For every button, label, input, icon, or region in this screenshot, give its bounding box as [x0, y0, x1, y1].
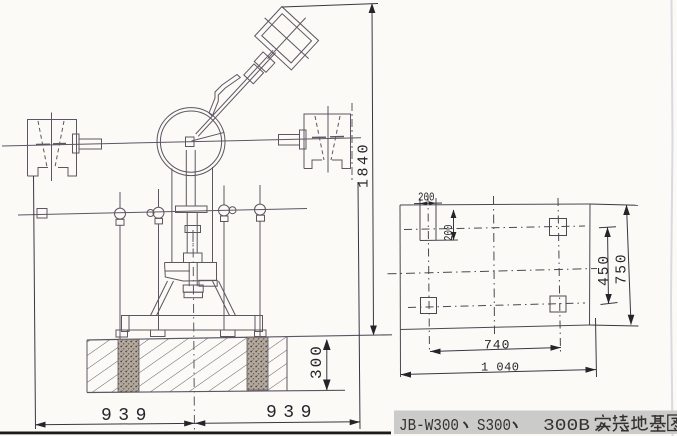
svg-text:200: 200 — [418, 191, 435, 205]
svg-text:1 040: 1 040 — [481, 361, 520, 375]
svg-text:740: 740 — [484, 338, 510, 353]
svg-text:300B: 300B — [543, 417, 590, 436]
svg-text:300: 300 — [308, 344, 326, 379]
svg-text:JB-W300: JB-W300 — [399, 417, 459, 436]
svg-text:1840: 1840 — [356, 142, 373, 188]
svg-text:S300: S300 — [477, 417, 511, 436]
svg-text:939: 939 — [101, 406, 153, 426]
svg-text:450: 450 — [597, 254, 613, 286]
svg-text:200: 200 — [442, 225, 456, 242]
svg-text:939: 939 — [266, 403, 318, 423]
svg-text:750: 750 — [615, 252, 631, 284]
